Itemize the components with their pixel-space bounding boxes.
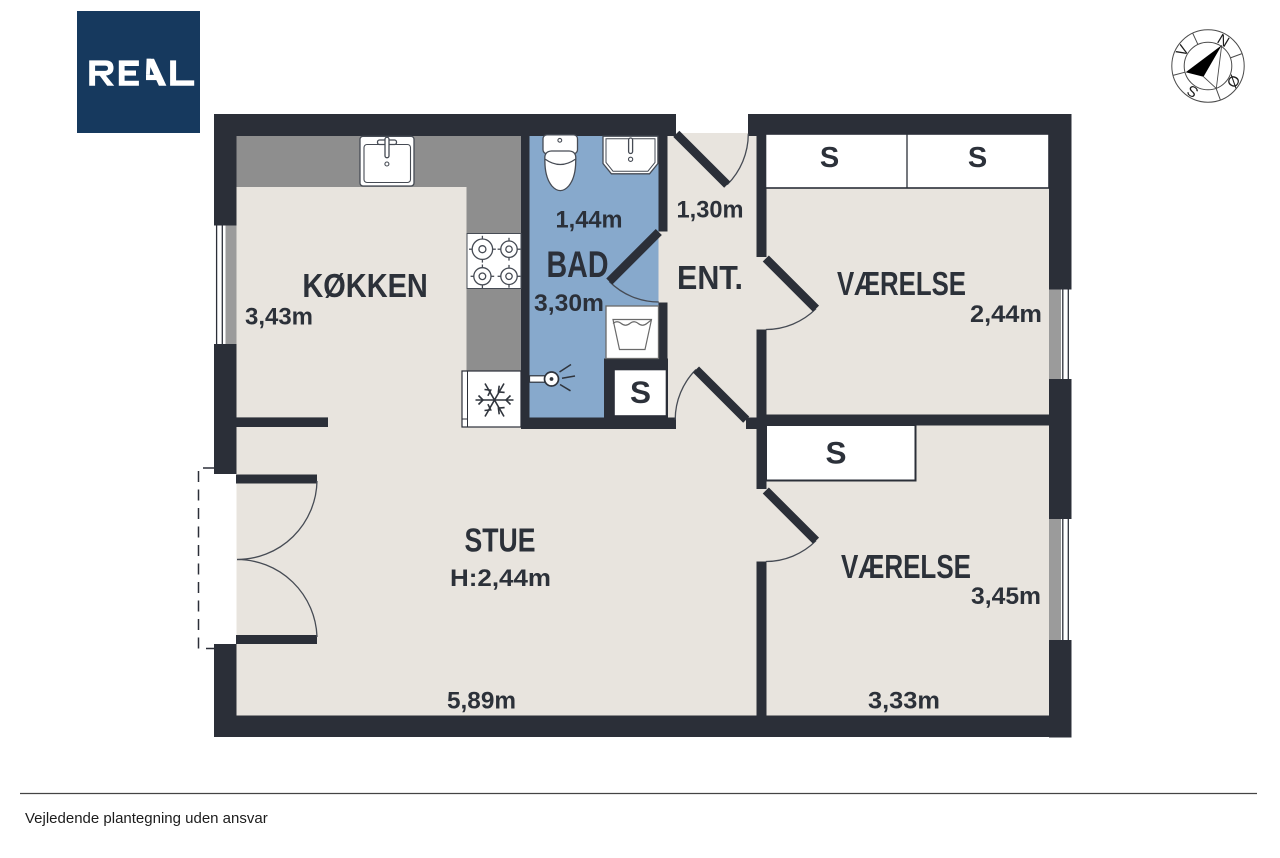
svg-text:BAD: BAD	[547, 244, 609, 285]
svg-text:STUE: STUE	[465, 521, 536, 558]
svg-text:ENT.: ENT.	[677, 259, 743, 296]
svg-text:Ø: Ø	[1223, 72, 1244, 91]
svg-text:5,89m: 5,89m	[447, 688, 516, 715]
svg-text:3,30m: 3,30m	[534, 290, 604, 317]
svg-text:N: N	[1214, 31, 1232, 51]
svg-text:VÆRELSE: VÆRELSE	[837, 265, 966, 302]
svg-text:S: S	[825, 435, 846, 471]
svg-text:S: S	[968, 142, 987, 174]
svg-text:2,44m: 2,44m	[970, 301, 1042, 328]
svg-text:S: S	[820, 142, 839, 174]
svg-text:VÆRELSE: VÆRELSE	[841, 548, 971, 585]
svg-text:H:2,44m: H:2,44m	[450, 565, 551, 592]
svg-text:S: S	[1184, 81, 1201, 101]
svg-text:3,33m: 3,33m	[868, 688, 940, 715]
svg-text:3,43m: 3,43m	[245, 304, 313, 331]
svg-text:KØKKEN: KØKKEN	[302, 267, 428, 304]
svg-text:1,30m: 1,30m	[677, 197, 744, 224]
svg-text:3,45m: 3,45m	[971, 583, 1041, 610]
svg-text:1,44m: 1,44m	[556, 206, 623, 233]
svg-text:S: S	[630, 374, 651, 410]
svg-text:V: V	[1173, 42, 1193, 59]
svg-text:Vejledende plantegning uden an: Vejledende plantegning uden ansvar	[25, 810, 268, 827]
